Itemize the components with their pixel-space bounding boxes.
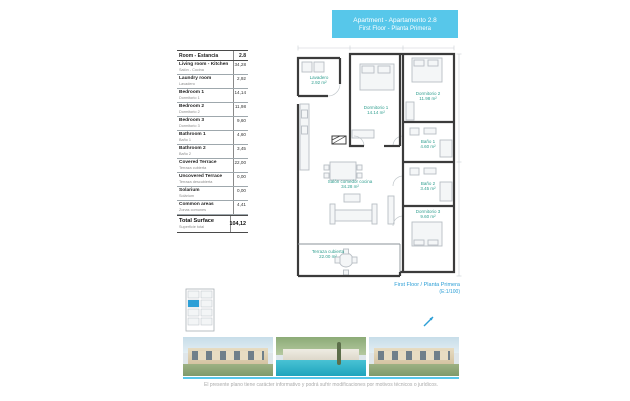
row-sublabel: Baño 1 bbox=[179, 138, 231, 143]
keyplan-highlight-unit bbox=[188, 300, 199, 307]
room-label-salon: Salón comedor cocina 34.28 m² bbox=[328, 179, 373, 189]
table-row: Bedroom 2 Dormitorio 2 11,98 bbox=[177, 103, 248, 117]
dining-table-glyph bbox=[324, 162, 362, 180]
row-sublabel: Dormitorio 3 bbox=[179, 124, 231, 129]
bed-glyph bbox=[412, 222, 442, 246]
row-value: 14,14 bbox=[233, 89, 248, 102]
row-cell: Bedroom 1 Dormitorio 1 bbox=[177, 89, 233, 102]
plan-caption-title: First Floor / Planta Primera bbox=[394, 282, 460, 289]
sink-glyph bbox=[424, 128, 436, 134]
row-cell: Bathroom 2 Baño 2 bbox=[177, 145, 233, 158]
table-row: Solarium Solárium 0,00 bbox=[177, 187, 248, 201]
total-value: 104,12 bbox=[230, 216, 248, 232]
row-sublabel: Zonas comunes bbox=[179, 208, 231, 213]
row-cell: Common areas Zonas comunes bbox=[177, 201, 233, 214]
room-area-table: Room - Estancia 2.8 Living room - Kitche… bbox=[177, 50, 248, 233]
table-row: Bathroom 2 Baño 2 3,45 bbox=[177, 145, 248, 159]
photo-windows bbox=[378, 351, 450, 360]
photo-building-exterior bbox=[183, 337, 273, 376]
shaft-hatch bbox=[332, 136, 346, 144]
row-sublabel: Salón - Cocina bbox=[179, 68, 231, 73]
row-cell: Solarium Solárium bbox=[177, 187, 233, 200]
toilet-glyph bbox=[410, 128, 419, 135]
footer-accent-rule bbox=[183, 377, 459, 379]
room-area: 34.28 m² bbox=[328, 184, 373, 189]
photo-pool-courtyard bbox=[276, 337, 366, 376]
room-label-bano-1: Baño 1 4.60 m² bbox=[420, 139, 435, 149]
row-value: 2,92 bbox=[233, 75, 248, 88]
room-area: 11.98 m² bbox=[416, 96, 441, 101]
room-area: 3.45 m² bbox=[420, 186, 435, 191]
table-row: Bedroom 1 Dormitorio 1 14,14 bbox=[177, 89, 248, 103]
title-band: Apartment - Apartamento 2.8 First Floor … bbox=[332, 10, 458, 38]
floor-plan: Lavadero 2.92 m² Dormitorio 1 14.14 m² D… bbox=[288, 44, 462, 286]
table-row: Common areas Zonas comunes 4,41 bbox=[177, 201, 248, 215]
room-label-dormitorio-3: Dormitorio 3 9.60 m² bbox=[416, 209, 441, 219]
table-header-value: 2.8 bbox=[233, 51, 248, 60]
row-sublabel: Solárium bbox=[179, 194, 231, 199]
table-header-row: Room - Estancia 2.8 bbox=[177, 51, 248, 61]
wardrobe-glyph bbox=[352, 130, 374, 138]
row-sublabel: Dormitorio 1 bbox=[179, 96, 231, 101]
room-area: 4.60 m² bbox=[420, 144, 435, 149]
wardrobe-glyph bbox=[406, 102, 414, 120]
row-cell: Laundry room Lavadero bbox=[177, 75, 233, 88]
plan-caption: First Floor / Planta Primera (E:1/100) bbox=[394, 282, 460, 296]
table-total-row: Total Surface Superficie total 104,12 bbox=[177, 215, 248, 233]
plan-caption-scale: (E:1/100) bbox=[394, 289, 460, 296]
row-value: 22,00 bbox=[233, 159, 248, 172]
dryer-glyph bbox=[314, 62, 324, 72]
row-cell: Bedroom 3 Dormitorio 3 bbox=[177, 117, 233, 130]
bed-glyph bbox=[412, 58, 442, 82]
plan-sheet-page: Apartment - Apartamento 2.8 First Floor … bbox=[0, 0, 630, 401]
row-cell: Covered Terrace Terraza cubierta bbox=[177, 159, 233, 172]
table-row: Bathroom 1 Baño 1 4,60 bbox=[177, 131, 248, 145]
washer-glyph bbox=[302, 62, 312, 72]
row-cell: Living room - Kitchen Salón - Cocina bbox=[177, 61, 233, 74]
coffee-table-glyph bbox=[344, 194, 360, 202]
row-value: 0,00 bbox=[233, 187, 248, 200]
photo-palm-tree bbox=[337, 342, 341, 365]
total-cell: Total Surface Superficie total bbox=[177, 216, 230, 232]
row-value: 9,60 bbox=[233, 117, 248, 130]
row-cell: Bathroom 1 Baño 1 bbox=[177, 131, 233, 144]
row-value: 4,41 bbox=[233, 201, 248, 214]
room-area: 2.92 m² bbox=[310, 80, 329, 85]
photo-pool bbox=[276, 360, 366, 376]
shower-glyph bbox=[440, 140, 452, 157]
table-row: Uncovered Terrace Terraza descubierta 0,… bbox=[177, 173, 248, 187]
total-label: Total Surface bbox=[179, 218, 228, 225]
total-sublabel: Superficie total bbox=[179, 225, 228, 230]
room-area: 14.14 m² bbox=[364, 110, 389, 115]
floor-subtitle: First Floor - Planta Primera bbox=[359, 25, 431, 33]
table-row: Covered Terrace Terraza cubierta 22,00 bbox=[177, 159, 248, 173]
row-sublabel: Terraza descubierta bbox=[179, 180, 231, 185]
photo-street-view bbox=[369, 337, 459, 376]
room-label-bano-2: Baño 2 3.45 m² bbox=[420, 181, 435, 191]
row-sublabel: Terraza cubierta bbox=[179, 166, 231, 171]
table-row: Living room - Kitchen Salón - Cocina 34,… bbox=[177, 61, 248, 75]
room-label-dormitorio-1: Dormitorio 1 14.14 m² bbox=[364, 105, 389, 115]
north-arrow-icon bbox=[421, 313, 437, 329]
table-header-label: Room - Estancia bbox=[177, 51, 233, 60]
table-row: Laundry room Lavadero 2,92 bbox=[177, 75, 248, 89]
toilet-glyph bbox=[410, 168, 419, 175]
sink-glyph bbox=[424, 168, 436, 174]
row-value: 4,60 bbox=[233, 131, 248, 144]
room-label-terraza: Terraza cubierta 22.00 m² bbox=[312, 249, 344, 259]
room-label-dormitorio-2: Dormitorio 2 11.98 m² bbox=[416, 91, 441, 101]
photo-building-mass bbox=[283, 349, 359, 361]
apartment-title: Apartment - Apartamento 2.8 bbox=[353, 16, 436, 25]
room-label-lavadero: Lavadero 2.92 m² bbox=[310, 75, 329, 85]
room-area: 9.60 m² bbox=[416, 214, 441, 219]
row-sublabel: Lavadero bbox=[179, 82, 231, 87]
shower-glyph bbox=[440, 182, 452, 201]
photo-ground bbox=[183, 364, 273, 376]
row-cell: Bedroom 2 Dormitorio 2 bbox=[177, 103, 233, 116]
row-value: 0,00 bbox=[233, 173, 248, 186]
row-value: 3,45 bbox=[233, 145, 248, 158]
row-sublabel: Dormitorio 2 bbox=[179, 110, 231, 115]
keyplan-minimap bbox=[185, 288, 215, 332]
tv-unit-glyph bbox=[388, 196, 394, 224]
room-area: 22.00 m² bbox=[312, 254, 344, 259]
row-value: 11,98 bbox=[233, 103, 248, 116]
sofa-glyph bbox=[330, 194, 377, 224]
bed-glyph bbox=[360, 64, 394, 90]
table-row: Bedroom 3 Dormitorio 3 9,60 bbox=[177, 117, 248, 131]
disclaimer-text: El presente plano tiene carácter informa… bbox=[160, 382, 482, 388]
photo-windows bbox=[192, 351, 264, 360]
row-value: 34,28 bbox=[233, 61, 248, 74]
row-cell: Uncovered Terrace Terraza descubierta bbox=[177, 173, 233, 186]
row-sublabel: Baño 2 bbox=[179, 152, 231, 157]
photo-ground bbox=[369, 364, 459, 376]
